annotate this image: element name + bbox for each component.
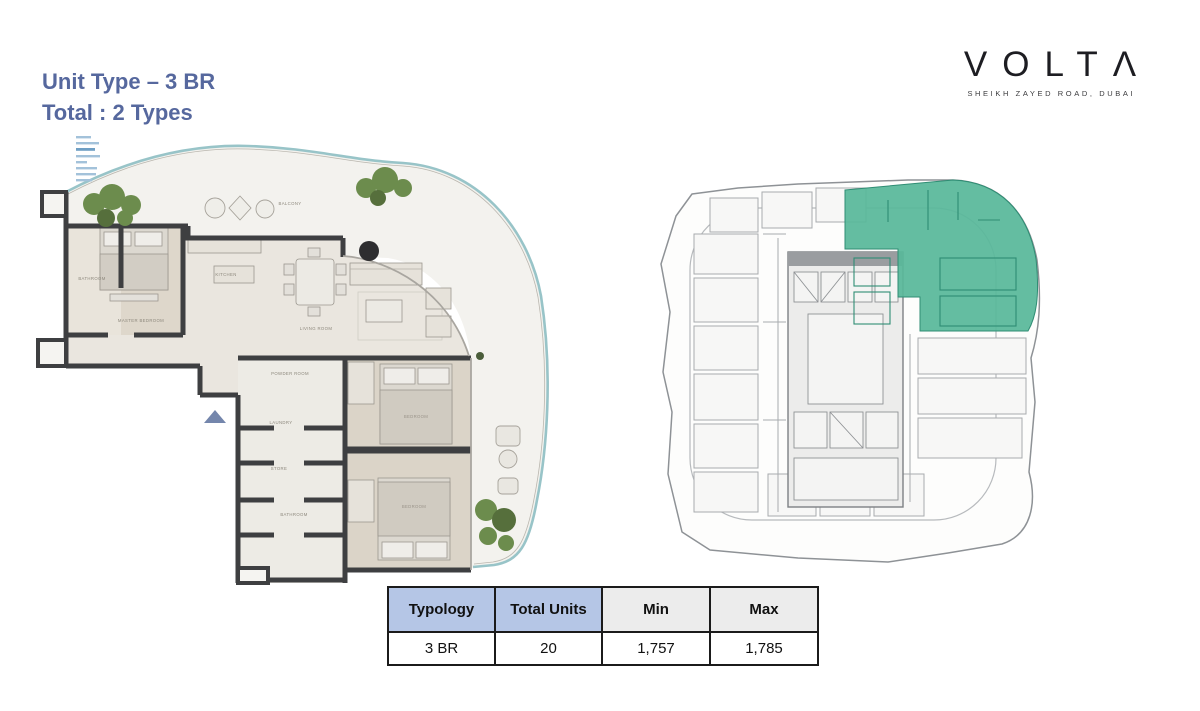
lower-wing-floor xyxy=(238,358,345,583)
label-master-bedroom: MASTER BEDROOM xyxy=(118,318,164,323)
key-plan xyxy=(648,172,1048,567)
cell-max: 1,785 xyxy=(710,632,818,665)
table-header-row: Typology Total Units Min Max xyxy=(388,587,818,632)
header-total-units: Total Units xyxy=(495,587,602,632)
label-bedroom3: BEDROOM xyxy=(402,504,426,509)
logo-wordmark: VOLTΛ xyxy=(940,46,1175,84)
header-min: Min xyxy=(602,587,710,632)
page-title: Unit Type – 3 BR Total : 2 Types xyxy=(42,66,215,128)
brand-logo: VOLTΛ SHEIKH ZAYED ROAD, DUBAI xyxy=(940,46,1160,98)
entry-arrow-icon xyxy=(204,410,226,423)
label-laundry: LAUNDRY xyxy=(270,420,293,425)
cell-min: 1,757 xyxy=(602,632,710,665)
header-max: Max xyxy=(710,587,818,632)
wall-niche-1 xyxy=(38,340,66,366)
label-bathroom: BATHROOM xyxy=(78,276,105,281)
label-store: STORE xyxy=(271,466,287,471)
wall-niche-3 xyxy=(238,568,268,583)
master-bed xyxy=(100,228,168,301)
unit-spec-table: Typology Total Units Min Max 3 BR 20 1,7… xyxy=(387,586,819,666)
area-legend xyxy=(76,136,100,181)
unit-floor-plan: BALCONY BATHROOM MASTER BEDROOM KITCHEN … xyxy=(28,128,558,588)
keyplan-core xyxy=(788,252,903,507)
label-bedroom2: BEDROOM xyxy=(404,414,428,419)
title-line-1: Unit Type – 3 BR xyxy=(42,66,215,97)
label-living-room: LIVING ROOM xyxy=(300,326,333,331)
cell-typology: 3 BR xyxy=(388,632,495,665)
table-row: 3 BR 20 1,757 1,785 xyxy=(388,632,818,665)
label-kitchen: KITCHEN xyxy=(215,272,236,277)
label-bathroom2: BATHROOM xyxy=(280,512,307,517)
column-dot xyxy=(359,241,379,261)
logo-tagline: SHEIKH ZAYED ROAD, DUBAI xyxy=(940,89,1163,98)
label-powder-room: POWDER ROOM xyxy=(271,371,309,376)
label-balcony: BALCONY xyxy=(279,201,302,206)
cell-total-units: 20 xyxy=(495,632,602,665)
brochure-page: Unit Type – 3 BR Total : 2 Types VOLTΛ S… xyxy=(0,0,1200,711)
wall-niche-2 xyxy=(42,192,66,216)
header-typology: Typology xyxy=(388,587,495,632)
title-line-2: Total : 2 Types xyxy=(42,97,215,128)
